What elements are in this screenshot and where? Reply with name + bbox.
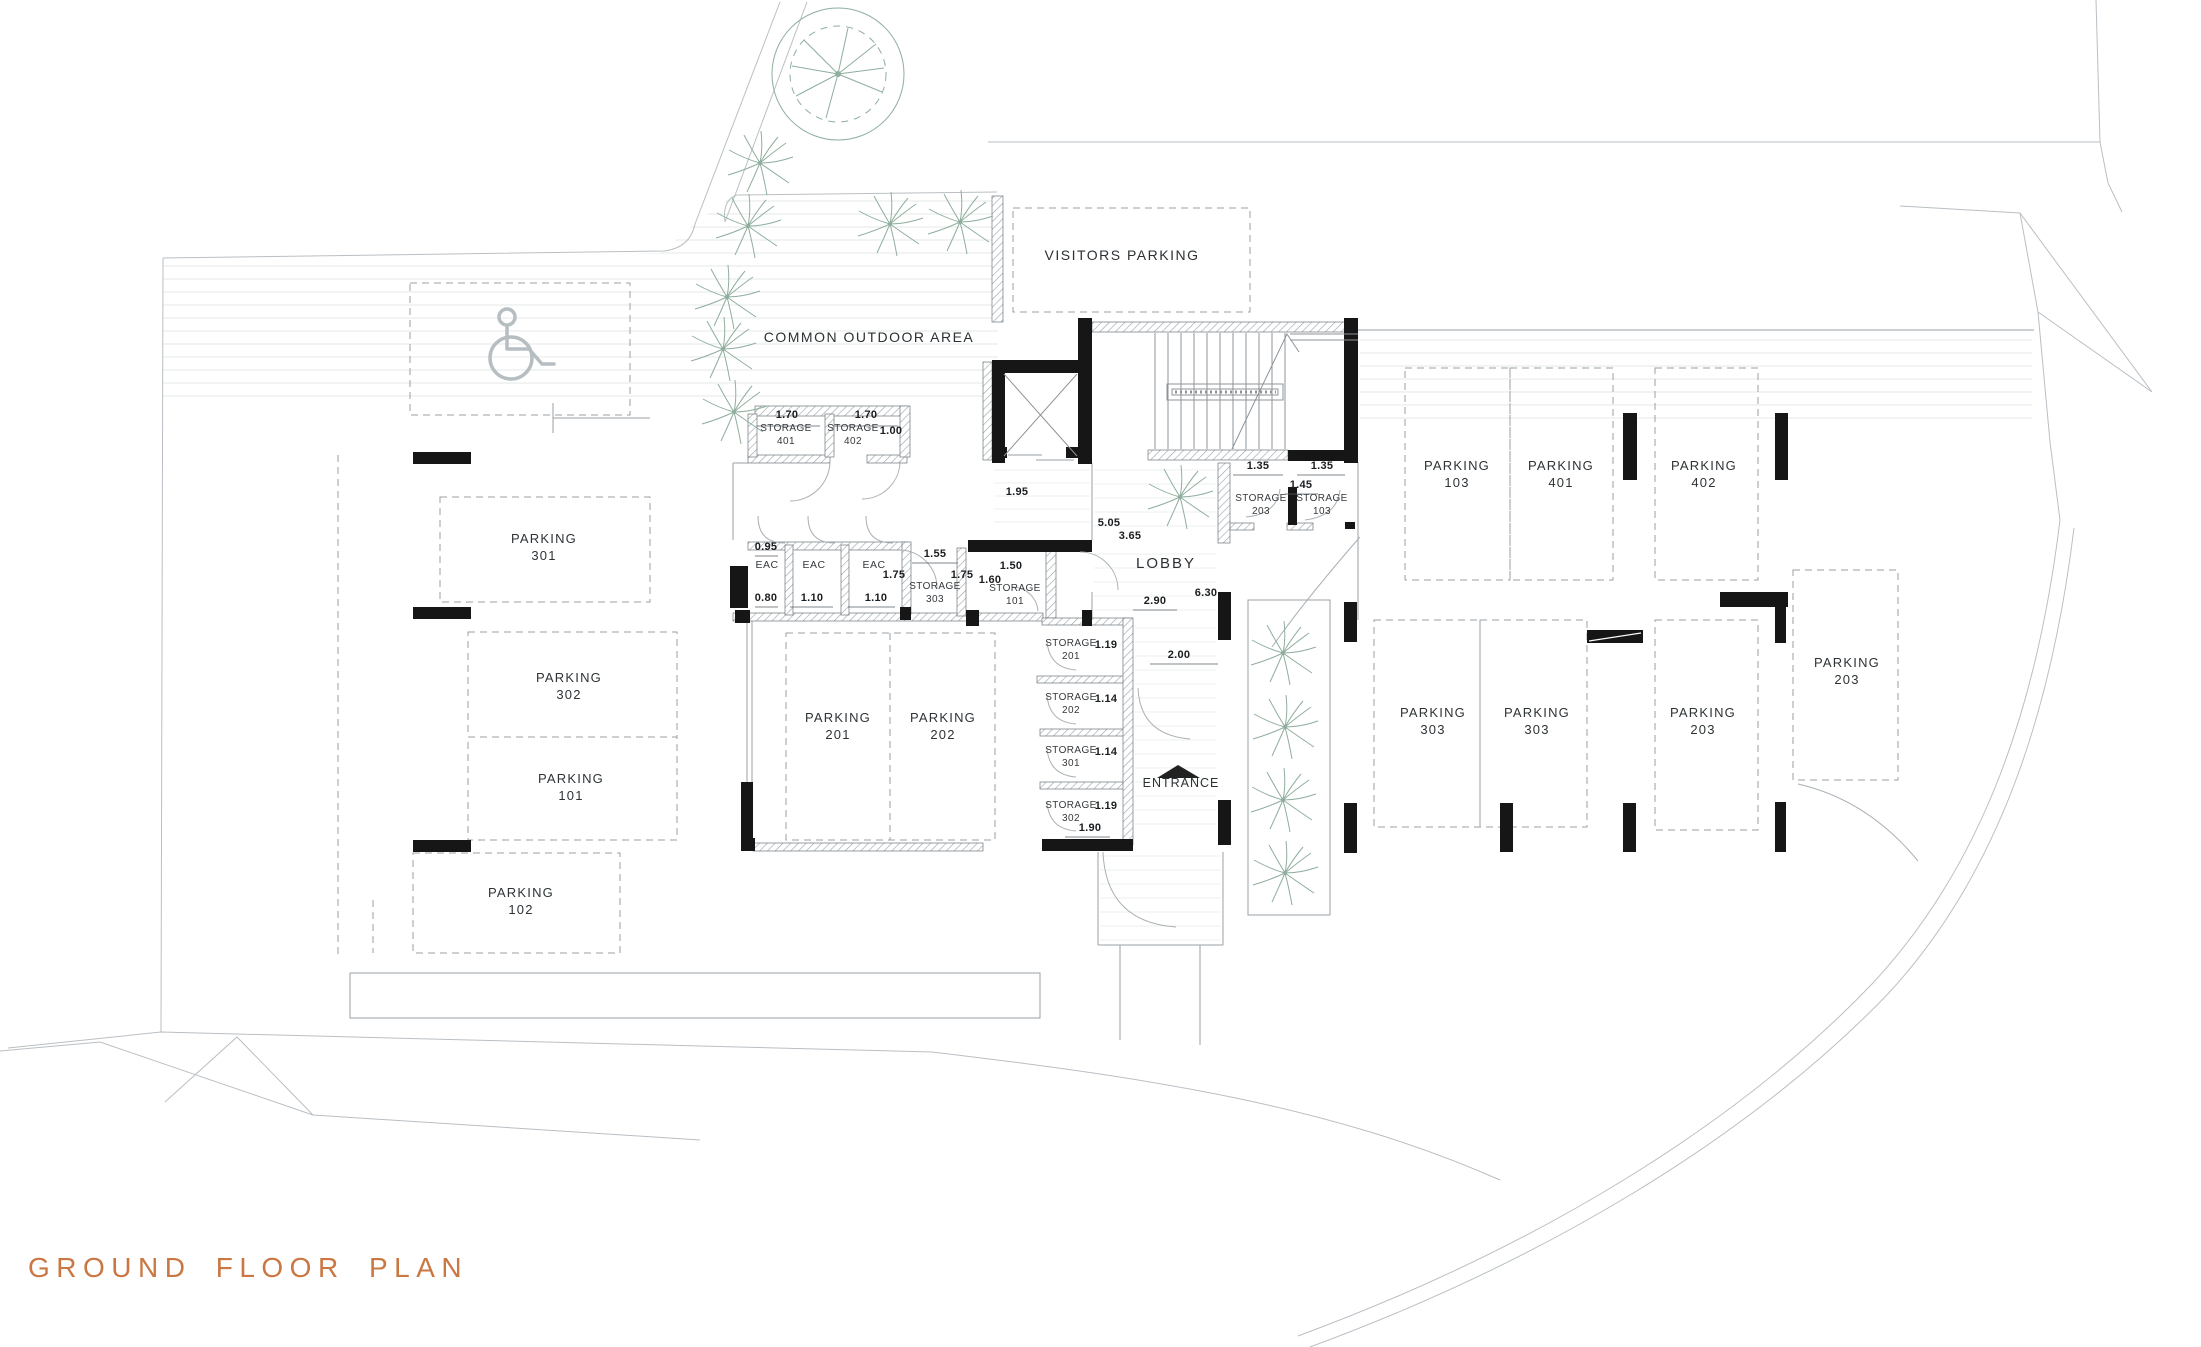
storage-303: STORAGE303 xyxy=(909,581,961,606)
storage-101: STORAGE101 xyxy=(989,583,1041,608)
common-outdoor-area-label: COMMON OUTDOOR AREA xyxy=(764,329,975,345)
storage-301: STORAGE301 xyxy=(1045,745,1097,770)
dimension-label: 1.70 xyxy=(776,409,799,421)
dimension-label: 1.70 xyxy=(855,409,878,421)
parking-spot-303-b: PARKING303 xyxy=(1504,704,1570,738)
walls-black xyxy=(413,318,1788,853)
plan-title: GROUND FLOOR PLAN xyxy=(28,1252,468,1284)
visitors-parking-label: VISITORS PARKING xyxy=(1045,247,1200,263)
storage-202: STORAGE202 xyxy=(1045,692,1097,717)
parking-spot-203-a: PARKING203 xyxy=(1670,704,1736,738)
entrance-label: ENTRANCE xyxy=(1143,776,1220,790)
dimension-label: 1.55 xyxy=(924,548,947,560)
dimension-label: 1.45 xyxy=(1290,479,1313,491)
parking-spot-203-b: PARKING203 xyxy=(1814,654,1880,688)
dimension-label: 1.75 xyxy=(951,569,974,581)
dimension-label: 1.19 xyxy=(1095,800,1118,812)
storage-401: STORAGE401 xyxy=(760,423,812,448)
dimension-label: 1.95 xyxy=(1006,486,1029,498)
parking-spot-303-a: PARKING303 xyxy=(1400,704,1466,738)
dimension-label: 2.00 xyxy=(1168,649,1191,661)
storage-402: STORAGE402 xyxy=(827,423,879,448)
dimension-label: 1.35 xyxy=(1247,460,1270,472)
storage-203: STORAGE203 xyxy=(1235,493,1287,518)
storage-103: STORAGE103 xyxy=(1296,493,1348,518)
parking-spot-302: PARKING302 xyxy=(536,669,602,703)
dimension-label: 1.14 xyxy=(1095,746,1118,758)
dimension-label: 1.00 xyxy=(880,425,903,437)
parking-spot-102: PARKING102 xyxy=(488,884,554,918)
staircase xyxy=(1155,333,1358,449)
ground-floor-plan: VISITORS PARKING COMMON OUTDOOR AREA LOB… xyxy=(0,0,2201,1347)
lobby-label: LOBBY xyxy=(1136,555,1196,572)
dimension-label: 1.14 xyxy=(1095,693,1118,705)
dimension-label: 1.60 xyxy=(979,574,1002,586)
dimension-label: 6.30 xyxy=(1195,587,1218,599)
parking-spot-301: PARKING301 xyxy=(511,530,577,564)
dimension-label: 0.95 xyxy=(755,541,778,553)
dimension-label: 5.05 xyxy=(1098,517,1121,529)
elevator xyxy=(1004,374,1077,456)
parking-spot-202: PARKING202 xyxy=(910,709,976,743)
dimension-lines xyxy=(755,426,1345,837)
road-curve xyxy=(1298,520,2074,1347)
walls-hatched xyxy=(733,196,1345,851)
storage-201: STORAGE201 xyxy=(1045,638,1097,663)
eac-room-2: EAC xyxy=(802,559,825,571)
eac-room-1: EAC xyxy=(755,559,778,571)
dimension-label: 2.90 xyxy=(1144,595,1167,607)
parking-spot-402: PARKING402 xyxy=(1671,457,1737,491)
parking-spot-401: PARKING401 xyxy=(1528,457,1594,491)
dimension-label: 1.90 xyxy=(1079,822,1102,834)
dimension-label: 1.75 xyxy=(883,569,906,581)
parking-spot-201: PARKING201 xyxy=(805,709,871,743)
parking-spot-103: PARKING103 xyxy=(1424,457,1490,491)
dimension-label: 1.19 xyxy=(1095,639,1118,651)
site-boundary xyxy=(0,0,2152,1180)
dimension-label: 3.65 xyxy=(1119,530,1142,542)
dimension-label: 1.10 xyxy=(865,592,888,604)
parking-spot-101: PARKING101 xyxy=(538,770,604,804)
dimension-label: 1.10 xyxy=(801,592,824,604)
dimension-label: 0.80 xyxy=(755,592,778,604)
dimension-label: 1.50 xyxy=(1000,560,1023,572)
door-arcs xyxy=(758,461,1918,927)
dimension-label: 1.35 xyxy=(1311,460,1334,472)
